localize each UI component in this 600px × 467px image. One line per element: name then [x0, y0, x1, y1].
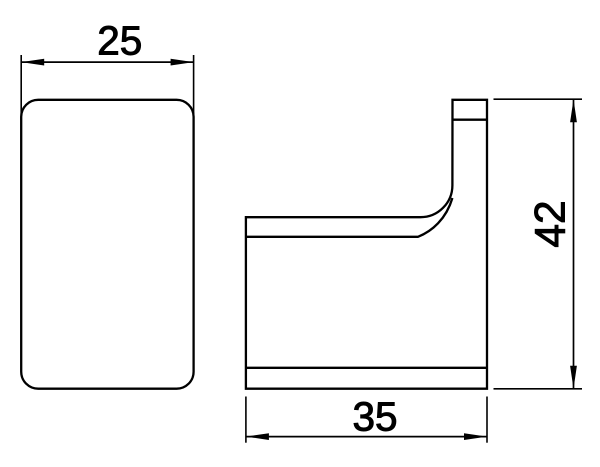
svg-text:42: 42: [528, 200, 575, 247]
svg-text:25: 25: [97, 18, 142, 64]
svg-text:35: 35: [352, 394, 397, 440]
